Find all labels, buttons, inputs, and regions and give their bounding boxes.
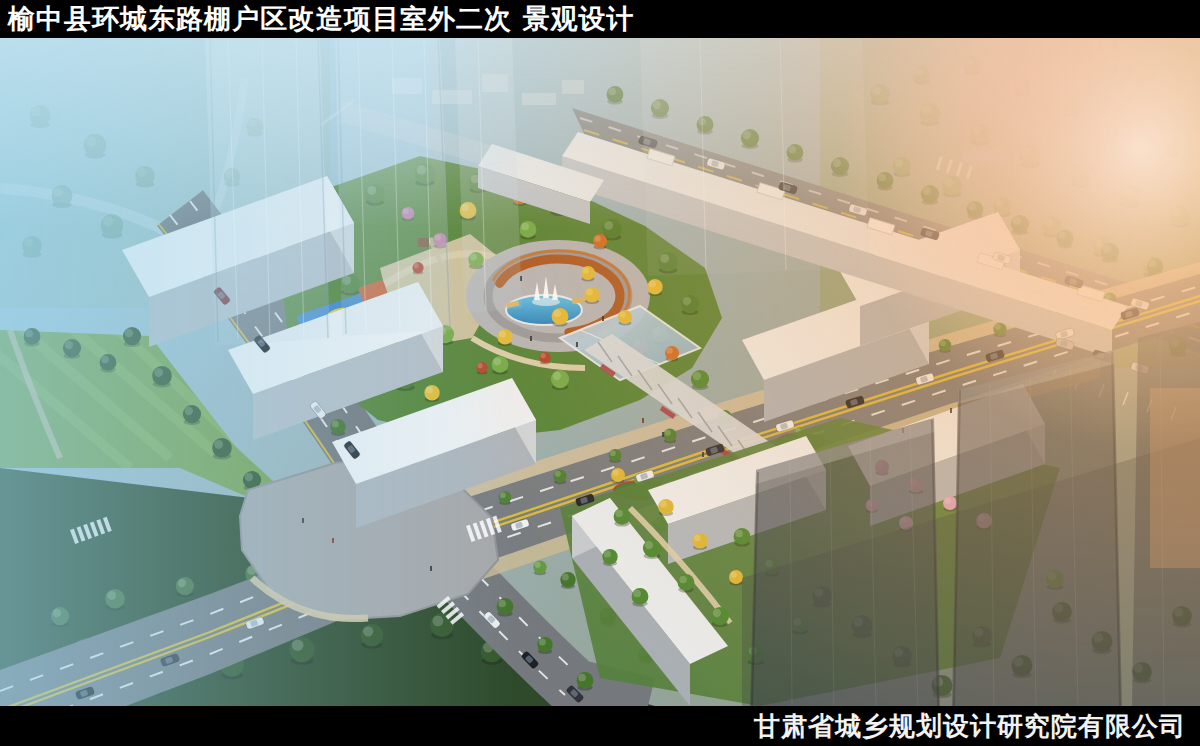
title-bar: 榆中县环城东路棚户区改造项目室外二次 景观设计 (0, 0, 1200, 38)
project-title: 榆中县环城东路棚户区改造项目室外二次 景观设计 (0, 1, 634, 37)
rendering-image (0, 38, 1200, 706)
credit-bar: 甘肃省城乡规划设计研究院有限公司 (0, 706, 1200, 746)
light-overlays (0, 38, 1200, 706)
design-institute-name: 甘肃省城乡规划设计研究院有限公司 (754, 709, 1200, 744)
